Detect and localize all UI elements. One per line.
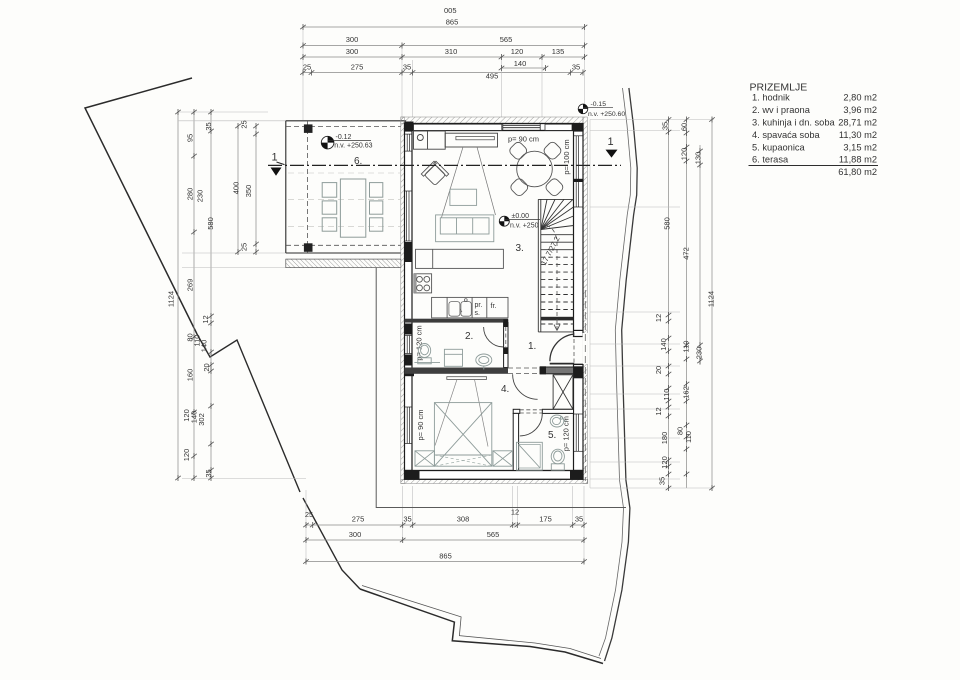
svg-text:135: 135: [552, 47, 565, 56]
svg-text:p= 120 cm: p= 120 cm: [415, 325, 424, 360]
svg-text:275: 275: [352, 515, 365, 524]
svg-text:35: 35: [403, 515, 411, 524]
svg-text:-0.15: -0.15: [591, 101, 607, 108]
svg-text:n.v. +250.63: n.v. +250.63: [334, 142, 372, 149]
svg-text:175: 175: [539, 515, 552, 524]
svg-text:400: 400: [232, 182, 241, 195]
svg-text:3,15 m2: 3,15 m2: [843, 142, 877, 152]
svg-text:120: 120: [660, 456, 669, 469]
svg-text:2. wv i praona: 2. wv i praona: [752, 105, 811, 115]
svg-text:280: 280: [186, 188, 195, 201]
svg-text:580: 580: [663, 217, 672, 230]
svg-text:35: 35: [575, 515, 583, 524]
svg-text:p= 100 cm: p= 100 cm: [562, 139, 571, 174]
svg-text:3,96 m2: 3,96 m2: [843, 105, 877, 115]
svg-text:2,80 m2: 2,80 m2: [843, 93, 877, 103]
svg-text:300: 300: [346, 47, 359, 56]
svg-text:120: 120: [680, 148, 689, 161]
svg-text:20: 20: [654, 366, 663, 374]
svg-text:35: 35: [204, 469, 213, 477]
svg-text:269: 269: [186, 279, 195, 292]
svg-text:1: 1: [608, 136, 614, 148]
svg-text:230: 230: [196, 190, 205, 203]
svg-text:12: 12: [654, 314, 663, 322]
svg-text:s.: s.: [475, 310, 481, 317]
svg-text:1. hodnik: 1. hodnik: [752, 93, 790, 103]
svg-text:-0.12: -0.12: [336, 134, 352, 141]
svg-text:110: 110: [662, 389, 671, 401]
svg-text:230: 230: [695, 347, 704, 360]
svg-text:95: 95: [186, 134, 195, 142]
svg-text:5.: 5.: [548, 430, 556, 441]
svg-text:472: 472: [682, 247, 691, 260]
svg-text:565: 565: [487, 530, 500, 539]
svg-text:350: 350: [244, 185, 253, 198]
svg-text:140: 140: [659, 338, 668, 351]
svg-text:12: 12: [201, 315, 210, 323]
svg-text:n.v. +250: n.v. +250: [510, 222, 539, 229]
svg-text:n.v. +250.60: n.v. +250.60: [588, 111, 625, 118]
svg-text:±0.00: ±0.00: [512, 213, 530, 220]
svg-text:300: 300: [349, 530, 362, 539]
svg-text:11,30 m2: 11,30 m2: [839, 130, 877, 140]
svg-text:865: 865: [439, 552, 452, 561]
svg-text:28,71 m2: 28,71 m2: [838, 118, 877, 128]
svg-text:580: 580: [206, 217, 215, 230]
svg-text:310: 310: [445, 47, 458, 56]
svg-text:110: 110: [684, 431, 693, 443]
svg-text:12: 12: [511, 508, 519, 517]
svg-text:180: 180: [660, 432, 669, 445]
svg-text:140: 140: [200, 340, 209, 353]
svg-text:35: 35: [572, 63, 580, 72]
svg-text:p= 90 cm: p= 90 cm: [416, 409, 425, 440]
svg-text:308: 308: [457, 515, 470, 524]
svg-text:2.: 2.: [465, 331, 473, 342]
svg-text:300: 300: [346, 35, 359, 44]
svg-text:35: 35: [661, 122, 670, 130]
svg-text:110: 110: [682, 341, 691, 353]
svg-text:3. kuhinja i dn. soba: 3. kuhinja i dn. soba: [752, 118, 836, 128]
svg-text:61,80 m2: 61,80 m2: [838, 167, 877, 177]
svg-text:6. terasa: 6. terasa: [752, 155, 789, 165]
svg-text:4.: 4.: [501, 384, 509, 395]
svg-text:35: 35: [204, 122, 213, 130]
svg-text:495: 495: [486, 72, 499, 81]
svg-text:275: 275: [351, 63, 364, 72]
svg-text:35: 35: [403, 63, 411, 72]
svg-text:120: 120: [511, 47, 524, 56]
svg-text:fr.: fr.: [491, 303, 497, 310]
svg-text:865: 865: [446, 18, 459, 27]
svg-text:20: 20: [202, 363, 211, 371]
svg-text:4. spavaća soba: 4. spavaća soba: [752, 130, 821, 140]
svg-text:005: 005: [444, 6, 457, 15]
svg-text:5. kupaonica: 5. kupaonica: [752, 142, 806, 152]
svg-text:25: 25: [240, 243, 249, 251]
svg-text:35: 35: [658, 477, 667, 485]
svg-text:60: 60: [680, 123, 689, 131]
svg-text:120: 120: [182, 449, 191, 462]
svg-text:25: 25: [240, 120, 249, 128]
svg-text:12: 12: [654, 407, 663, 415]
svg-text:140: 140: [514, 59, 527, 68]
svg-text:302: 302: [197, 413, 206, 426]
svg-text:p= 90 cm: p= 90 cm: [508, 135, 539, 144]
svg-text:1.: 1.: [528, 341, 536, 352]
svg-text:1124: 1124: [167, 291, 176, 307]
svg-text:pr.: pr.: [475, 302, 483, 309]
svg-text:160: 160: [186, 369, 195, 382]
svg-text:25: 25: [305, 510, 313, 519]
svg-text:11,88 m2: 11,88 m2: [839, 155, 877, 165]
svg-text:3.: 3.: [516, 243, 524, 254]
svg-text:1124: 1124: [707, 291, 716, 307]
svg-text:565: 565: [500, 35, 513, 44]
svg-text:130: 130: [694, 152, 703, 165]
svg-text:25: 25: [303, 63, 311, 72]
svg-text:PRIZEMLJE: PRIZEMLJE: [750, 82, 808, 94]
svg-text:162: 162: [682, 386, 691, 399]
